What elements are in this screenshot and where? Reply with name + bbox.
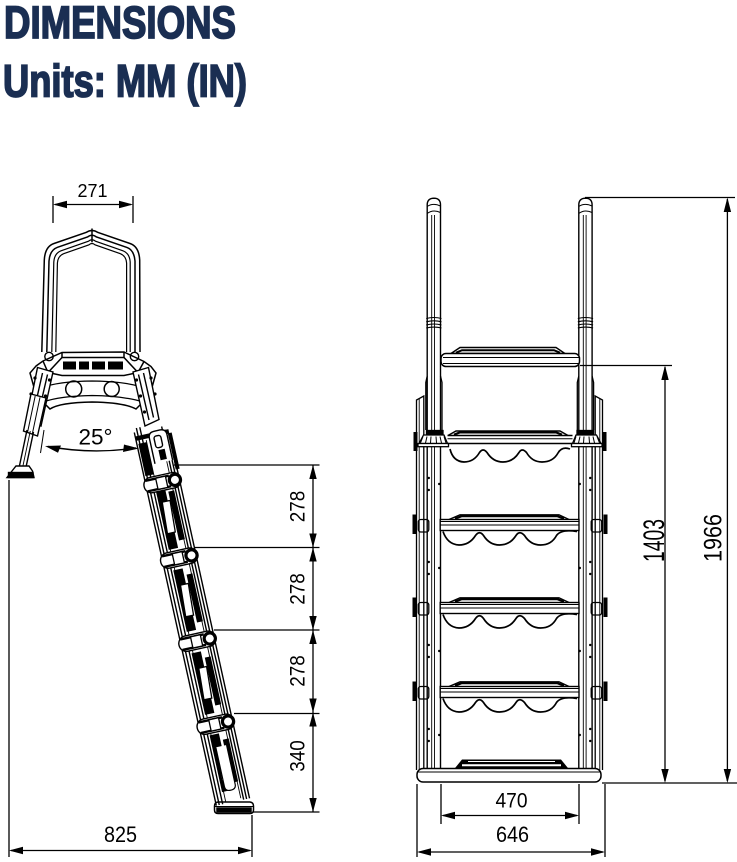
svg-text:DIMENSIONS: DIMENSIONS (4, 0, 236, 48)
svg-text:278: 278 (285, 573, 309, 605)
svg-text:278: 278 (285, 655, 309, 687)
svg-text:470: 470 (496, 790, 528, 813)
svg-text:Units: MM (IN): Units: MM (IN) (3, 56, 247, 107)
svg-text:25°: 25° (78, 425, 112, 450)
svg-text:646: 646 (496, 822, 529, 847)
svg-text:825: 825 (104, 822, 137, 847)
svg-text:340: 340 (285, 740, 309, 772)
svg-text:1966: 1966 (700, 514, 728, 562)
svg-text:271: 271 (78, 181, 108, 201)
svg-text:1403: 1403 (638, 519, 671, 562)
svg-text:278: 278 (285, 491, 309, 523)
